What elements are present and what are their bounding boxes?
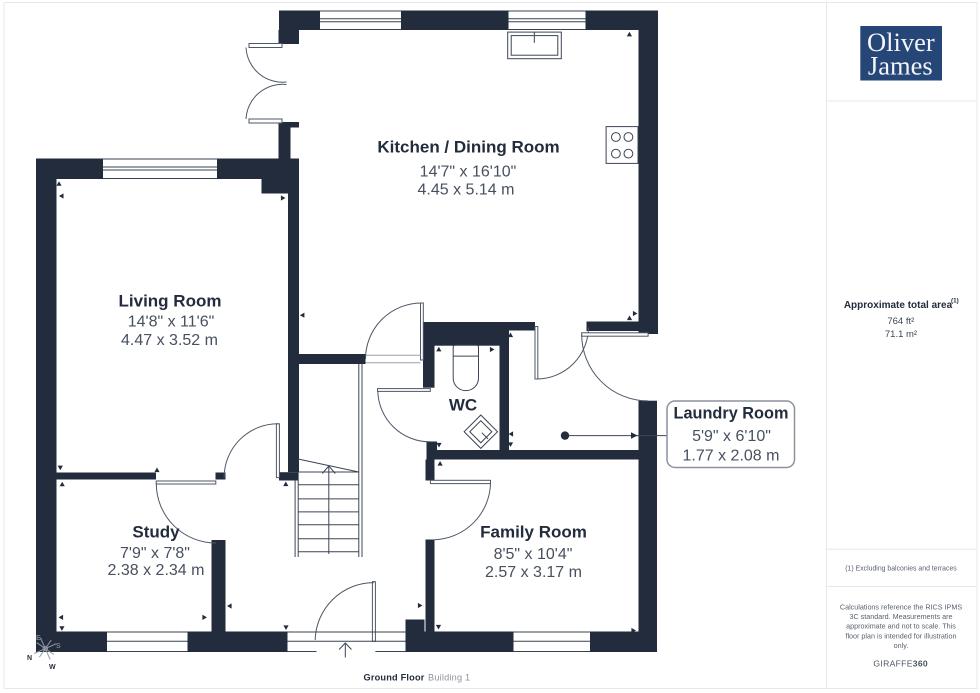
svg-text:GIRAFFE360: GIRAFFE360 — [873, 659, 928, 669]
svg-text:Laundry Room: Laundry Room — [674, 405, 789, 423]
svg-text:N: N — [27, 655, 32, 662]
svg-text:floor plan is intended for ill: floor plan is intended for illustration — [845, 631, 956, 640]
svg-text:1.77 x 2.08 m: 1.77 x 2.08 m — [683, 448, 780, 465]
svg-text:James: James — [868, 50, 933, 80]
svg-text:5'9" x 6'10": 5'9" x 6'10" — [692, 428, 771, 445]
svg-text:2.57 x 3.17 m: 2.57 x 3.17 m — [485, 564, 582, 581]
svg-text:Calculations reference the RIC: Calculations reference the RICS IPMS — [840, 603, 962, 612]
svg-text:4.45 x 5.14 m: 4.45 x 5.14 m — [418, 182, 515, 199]
svg-text:Study: Study — [132, 523, 180, 542]
svg-text:71.1 m²: 71.1 m² — [885, 329, 917, 340]
svg-text:764 ft²: 764 ft² — [887, 316, 914, 327]
svg-text:approximate and not to scale.: approximate and not to scale. This — [846, 622, 956, 631]
svg-text:2.38 x 2.34 m: 2.38 x 2.34 m — [108, 562, 205, 579]
svg-text:14'8" x 11'6": 14'8" x 11'6" — [128, 314, 215, 331]
svg-text:(1) Excluding balconies and te: (1) Excluding balconies and terraces — [845, 566, 957, 573]
svg-text:Approximate total area: Approximate total area — [844, 300, 953, 311]
svg-text:W: W — [49, 664, 56, 671]
svg-text:E: E — [36, 635, 41, 642]
svg-text:Building 1: Building 1 — [428, 673, 470, 683]
svg-text:only.: only. — [894, 641, 909, 650]
svg-text:Living Room: Living Room — [119, 292, 222, 311]
svg-text:8'5" x 10'4": 8'5" x 10'4" — [494, 546, 573, 563]
svg-text:Ground Floor: Ground Floor — [364, 673, 425, 683]
svg-text:14'7" x 16'10": 14'7" x 16'10" — [420, 164, 517, 181]
svg-text:7'9" x 7'8": 7'9" x 7'8" — [120, 545, 190, 562]
svg-text:S: S — [56, 643, 61, 650]
svg-text:(1): (1) — [951, 298, 959, 305]
svg-text:3C standard. Measurements are: 3C standard. Measurements are — [849, 612, 952, 621]
svg-text:4.47 x 3.52 m: 4.47 x 3.52 m — [121, 332, 218, 349]
svg-text:WC: WC — [449, 396, 477, 415]
svg-text:Family Room: Family Room — [480, 523, 587, 542]
svg-text:Kitchen / Dining Room: Kitchen / Dining Room — [377, 138, 559, 157]
